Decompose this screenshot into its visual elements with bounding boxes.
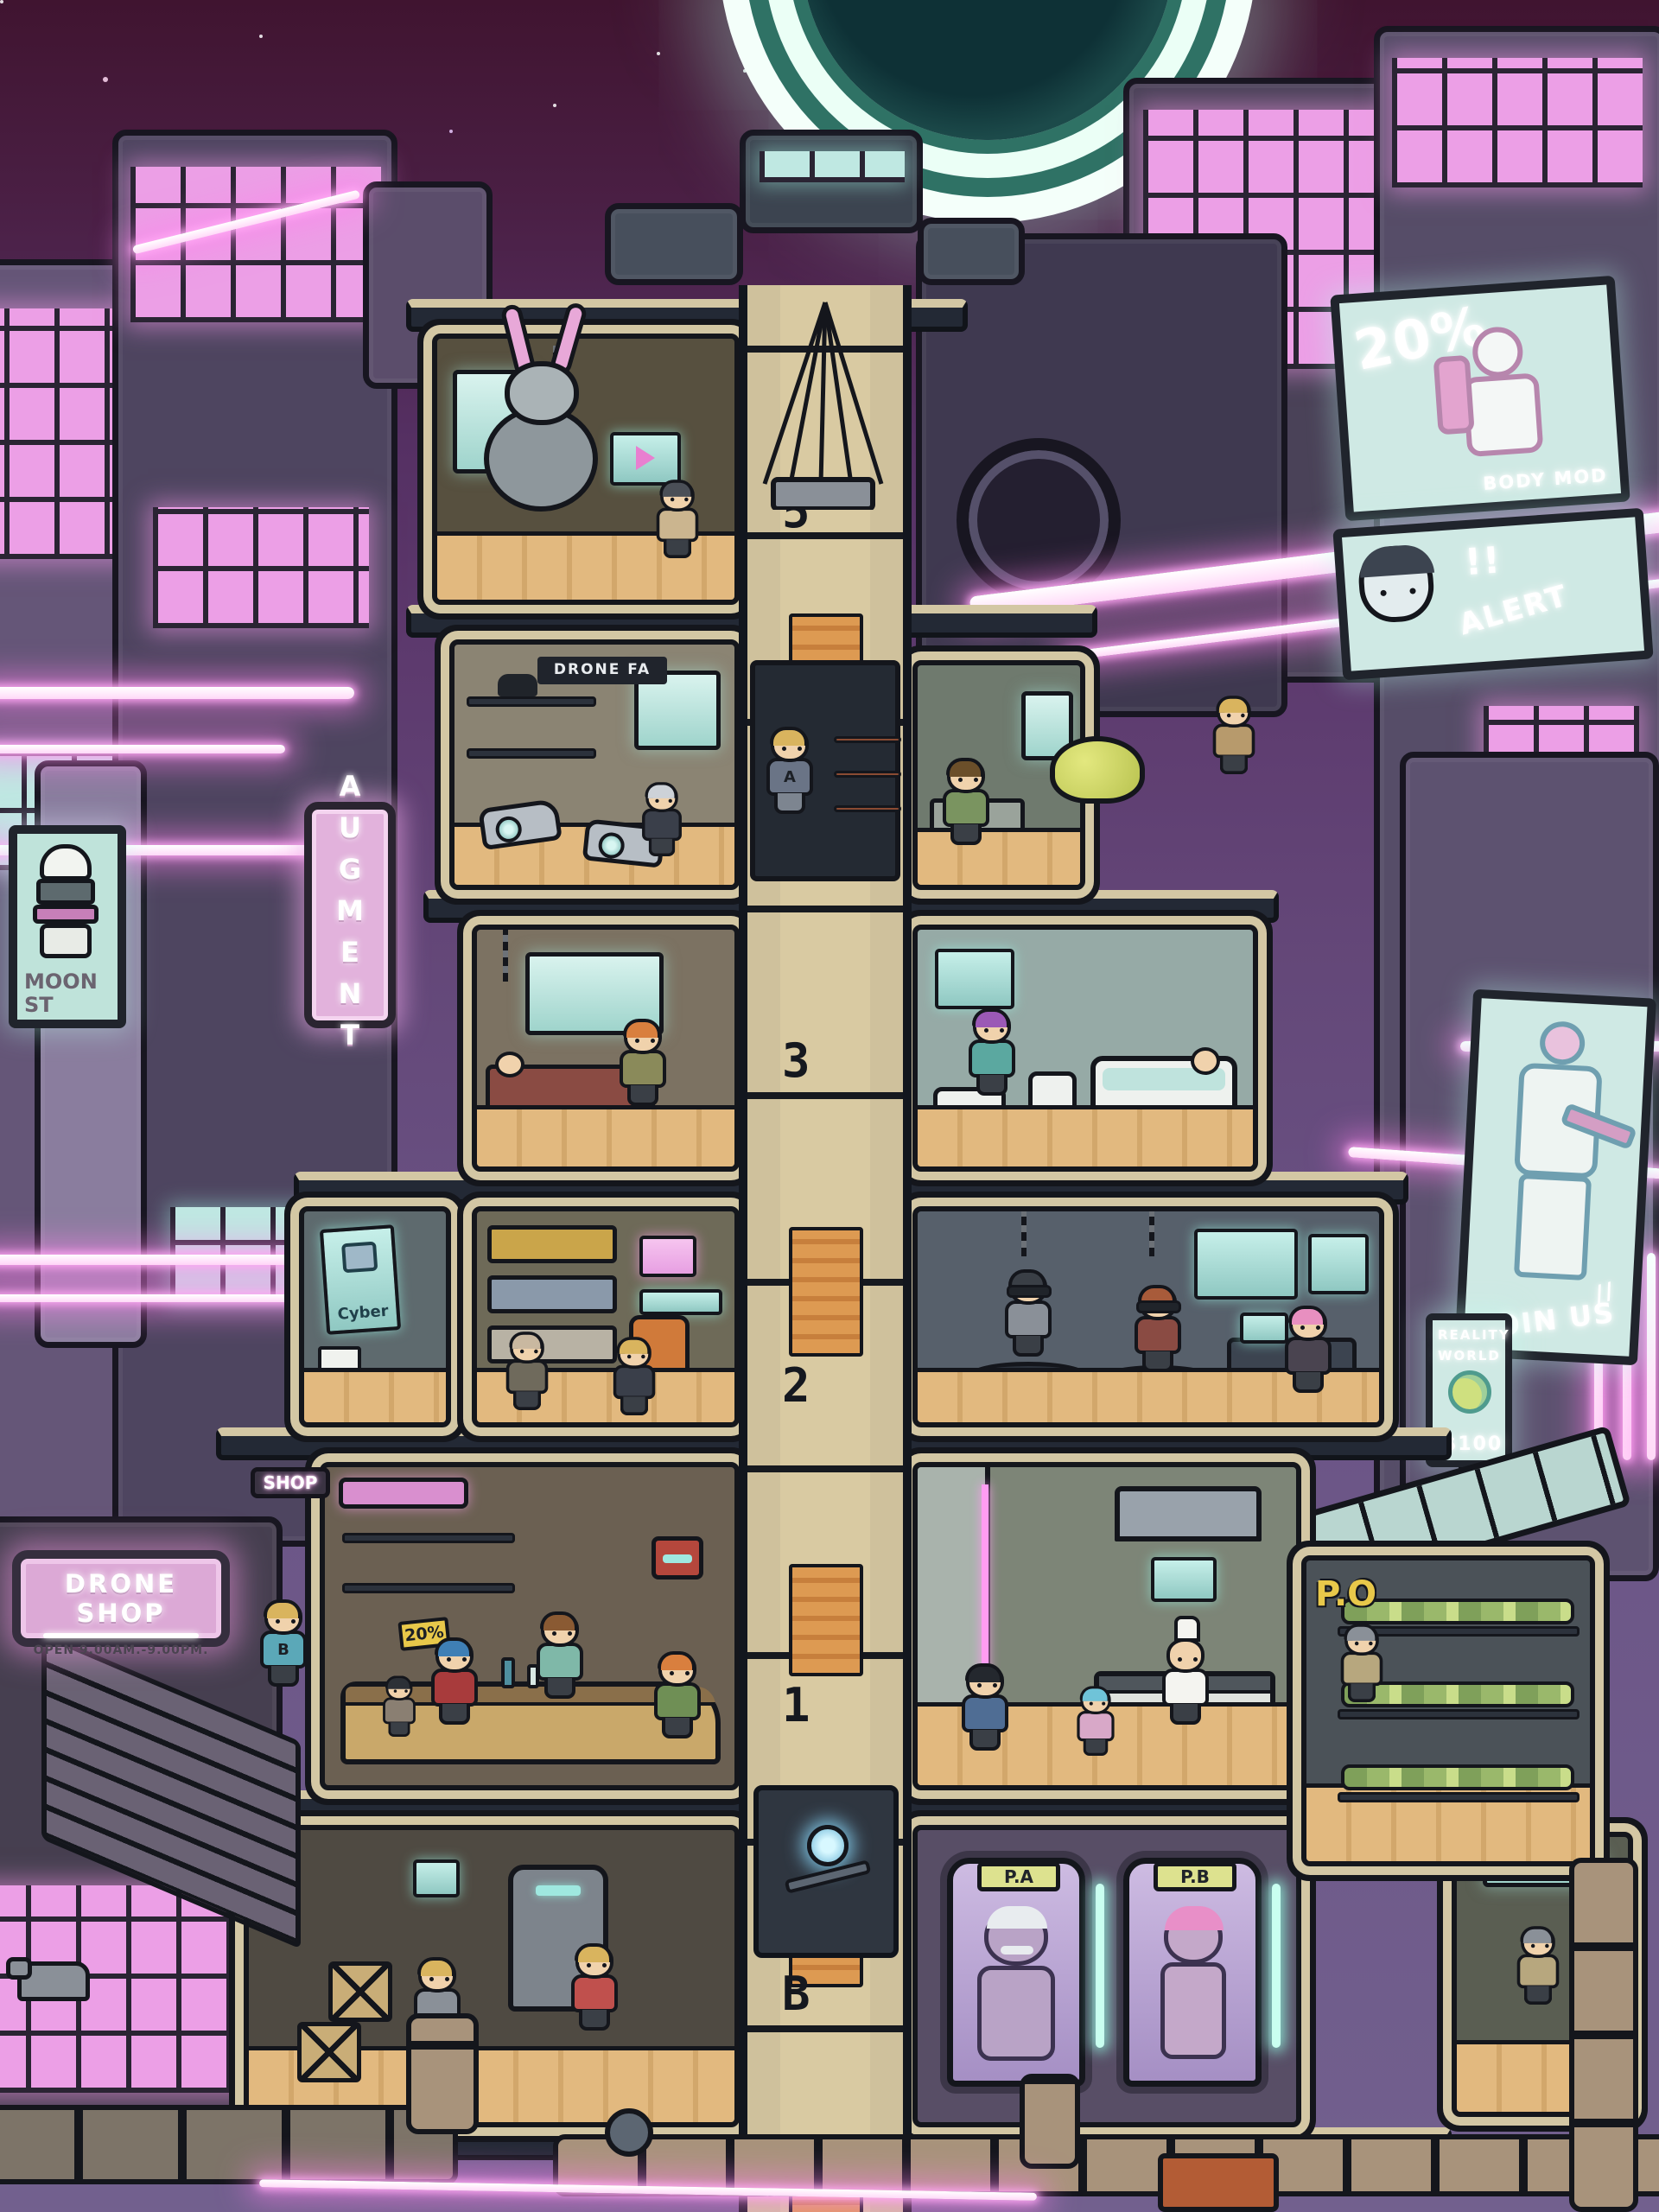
pod-a-hair <box>987 1906 1047 1929</box>
alert-exclaim: !! <box>1464 538 1503 583</box>
sign-shop: SHOP <box>251 1467 330 1498</box>
cyberpunk-tower-scene: MOON ST 20% BODY MOD !! ALERT // JOIN US… <box>0 0 1659 2212</box>
bunk-top[interactable] <box>487 1225 617 1263</box>
sign-drone-fa: DRONE FA <box>537 657 667 684</box>
alert-hair <box>1358 543 1434 578</box>
roof-box <box>740 130 923 233</box>
robot-head-trophy <box>652 1536 703 1580</box>
porthole-window <box>957 438 1121 602</box>
reality-line2: WORLD <box>1438 1348 1501 1363</box>
shirt-letter-a: A <box>784 768 796 786</box>
character-shop-customer[interactable] <box>430 1638 479 1725</box>
pod-a-label: P.A <box>977 1862 1060 1891</box>
drone-shop-hours: OPEN 9.00AM.-9.00PM. <box>21 1643 221 1657</box>
character-workshop-engineer[interactable] <box>641 783 683 856</box>
alert-label: ALERT <box>1455 578 1572 642</box>
roof-box <box>605 203 743 285</box>
floor-label-1: 1 <box>782 1678 810 1732</box>
glow-tube <box>1272 1884 1281 2048</box>
pod-b-occupant-head <box>1164 1910 1223 1964</box>
character-desk-blond[interactable] <box>613 1338 656 1415</box>
character-greenhouse-worker[interactable] <box>1340 1624 1383 1702</box>
sleeper-head <box>495 1052 524 1077</box>
pipe <box>1569 1858 1638 2212</box>
soldier-helmet <box>1539 1020 1586 1066</box>
cyber-poster-text: Cyber <box>337 1302 389 1324</box>
alert-eyes <box>1380 590 1386 596</box>
globe-icon <box>1448 1370 1491 1414</box>
valve-wheel[interactable] <box>605 2108 653 2157</box>
character-mohawk-patron[interactable] <box>653 1652 702 1738</box>
character-waitress-kid[interactable] <box>1077 1687 1116 1756</box>
room-hallway[interactable]: Cyber Park <box>299 1206 451 1427</box>
character-scarf-guy[interactable] <box>570 1944 619 2031</box>
pod-b-hair <box>1165 1906 1224 1930</box>
character-vr-operator[interactable] <box>1284 1306 1332 1393</box>
building-right-wing <box>916 233 1287 717</box>
character-kid-browser[interactable] <box>382 1676 416 1737</box>
neon-bar <box>1647 1253 1656 1460</box>
billboard-join-us: // JOIN US <box>1454 989 1656 1366</box>
billboard-moon-st: MOON ST <box>9 825 126 1028</box>
bunk-mid[interactable] <box>487 1275 617 1313</box>
floor-label-3: 3 <box>782 1033 810 1088</box>
sign-augment: AUGMENT <box>304 802 396 1028</box>
character-landing-guy[interactable]: A <box>766 728 814 814</box>
alert-face <box>1357 543 1436 625</box>
pod-a-occupant-body <box>977 1966 1055 2061</box>
holo-screen[interactable] <box>610 432 681 486</box>
shirt-letter-b: B <box>277 1641 289 1659</box>
yellow-shrub <box>1050 736 1145 804</box>
sign-po: P.O <box>1315 1574 1376 1614</box>
pod-a-occupant-head <box>984 1909 1048 1966</box>
billboard-figure-body <box>1462 372 1543 457</box>
billboard-discount: 20% <box>1349 293 1492 383</box>
billboard-moon-st-line2: ST <box>24 993 54 1017</box>
drone-shop-title: DRONE SHOP <box>21 1569 221 1628</box>
reality-price: $100 <box>1443 1433 1503 1455</box>
billboard-body-mod-caption: BODY MOD <box>1483 465 1609 494</box>
character-chef[interactable] <box>1161 1638 1210 1725</box>
character-drone-shop-guy[interactable]: B <box>259 1600 308 1687</box>
room-bathroom[interactable] <box>912 925 1258 1172</box>
pink-triangle-icon <box>636 446 655 470</box>
character-annex-cyborg[interactable] <box>1516 1927 1560 2005</box>
character-vr-user-2[interactable] <box>1134 1286 1182 1372</box>
character-ledge-sitter[interactable] <box>1212 696 1255 774</box>
neon-line <box>0 745 285 753</box>
stasis-pod-b[interactable]: P.B <box>1123 1858 1262 2087</box>
character-orange-hair-guy[interactable] <box>619 1020 667 1106</box>
floor-label-2: 2 <box>782 1358 810 1413</box>
glow-tube <box>1096 1884 1104 2048</box>
mech-visor <box>536 1885 581 1896</box>
pod-b-occupant-body <box>1160 1962 1226 2059</box>
boiler-box <box>1158 2153 1279 2212</box>
room-bedroom[interactable] <box>472 925 740 1172</box>
pipe <box>1020 2074 1080 2169</box>
robot-head <box>36 879 95 905</box>
robot-band <box>33 905 99 924</box>
billboard-figure-barber <box>1433 355 1475 435</box>
neon-line <box>0 1294 311 1302</box>
duct <box>0 2105 458 2184</box>
elevator-cables <box>739 285 912 510</box>
sign-drone-shop: DRONE SHOP OPEN 9.00AM.-9.00PM. <box>12 1550 230 1647</box>
billboard-body-mod: 20% BODY MOD <box>1330 276 1630 521</box>
bottle <box>501 1657 515 1688</box>
reality-line1: REALITY <box>1438 1327 1510 1343</box>
character-kitchen-walker[interactable] <box>961 1664 1009 1751</box>
bather-head <box>1191 1047 1220 1075</box>
robotic-arm-joint <box>807 1825 849 1866</box>
roof-box <box>918 218 1025 285</box>
rabbit-robot-head <box>505 361 579 425</box>
robot-dog[interactable] <box>17 1961 90 2001</box>
sign-augment-text: AUGMENT <box>334 770 366 1060</box>
character-bartender[interactable] <box>536 1612 584 1699</box>
cat[interactable] <box>498 674 537 696</box>
robot-body <box>40 924 92 958</box>
pod-a-mustache <box>1001 1946 1033 1955</box>
ringed-moon <box>802 0 1173 140</box>
character-bunkroom-capguy[interactable] <box>505 1332 549 1410</box>
room-basement-storage[interactable] <box>244 1825 740 2127</box>
room-shop-bar[interactable]: 20% <box>320 1462 740 1790</box>
billboard-alert: !! ALERT <box>1332 508 1653 681</box>
billboard-moon-st-line1: MOON <box>24 969 98 994</box>
pod-b-label: P.B <box>1154 1862 1236 1891</box>
floor-label-b: B <box>782 1967 810 2021</box>
robot-visor <box>663 1554 692 1563</box>
pipe <box>406 2013 479 2134</box>
character-rooftop-observer[interactable] <box>656 480 699 558</box>
range-hood <box>1115 1486 1262 1541</box>
elevator-car[interactable] <box>753 1785 899 1958</box>
character-kitchenette-resident[interactable] <box>942 759 990 845</box>
neon-line <box>0 1255 311 1265</box>
neon-line <box>0 687 354 699</box>
soldier-legs <box>1514 1173 1592 1281</box>
stasis-pod-a[interactable]: P.A <box>947 1858 1085 2087</box>
pink-banner <box>339 1478 468 1509</box>
robot-dome <box>40 844 92 880</box>
stars <box>0 0 3 3</box>
cyber-poster-art <box>341 1242 378 1274</box>
character-bathroom-woman[interactable] <box>968 1009 1016 1096</box>
robot-dog-head <box>6 1957 32 1980</box>
character-vr-user-1[interactable] <box>1004 1270 1052 1357</box>
